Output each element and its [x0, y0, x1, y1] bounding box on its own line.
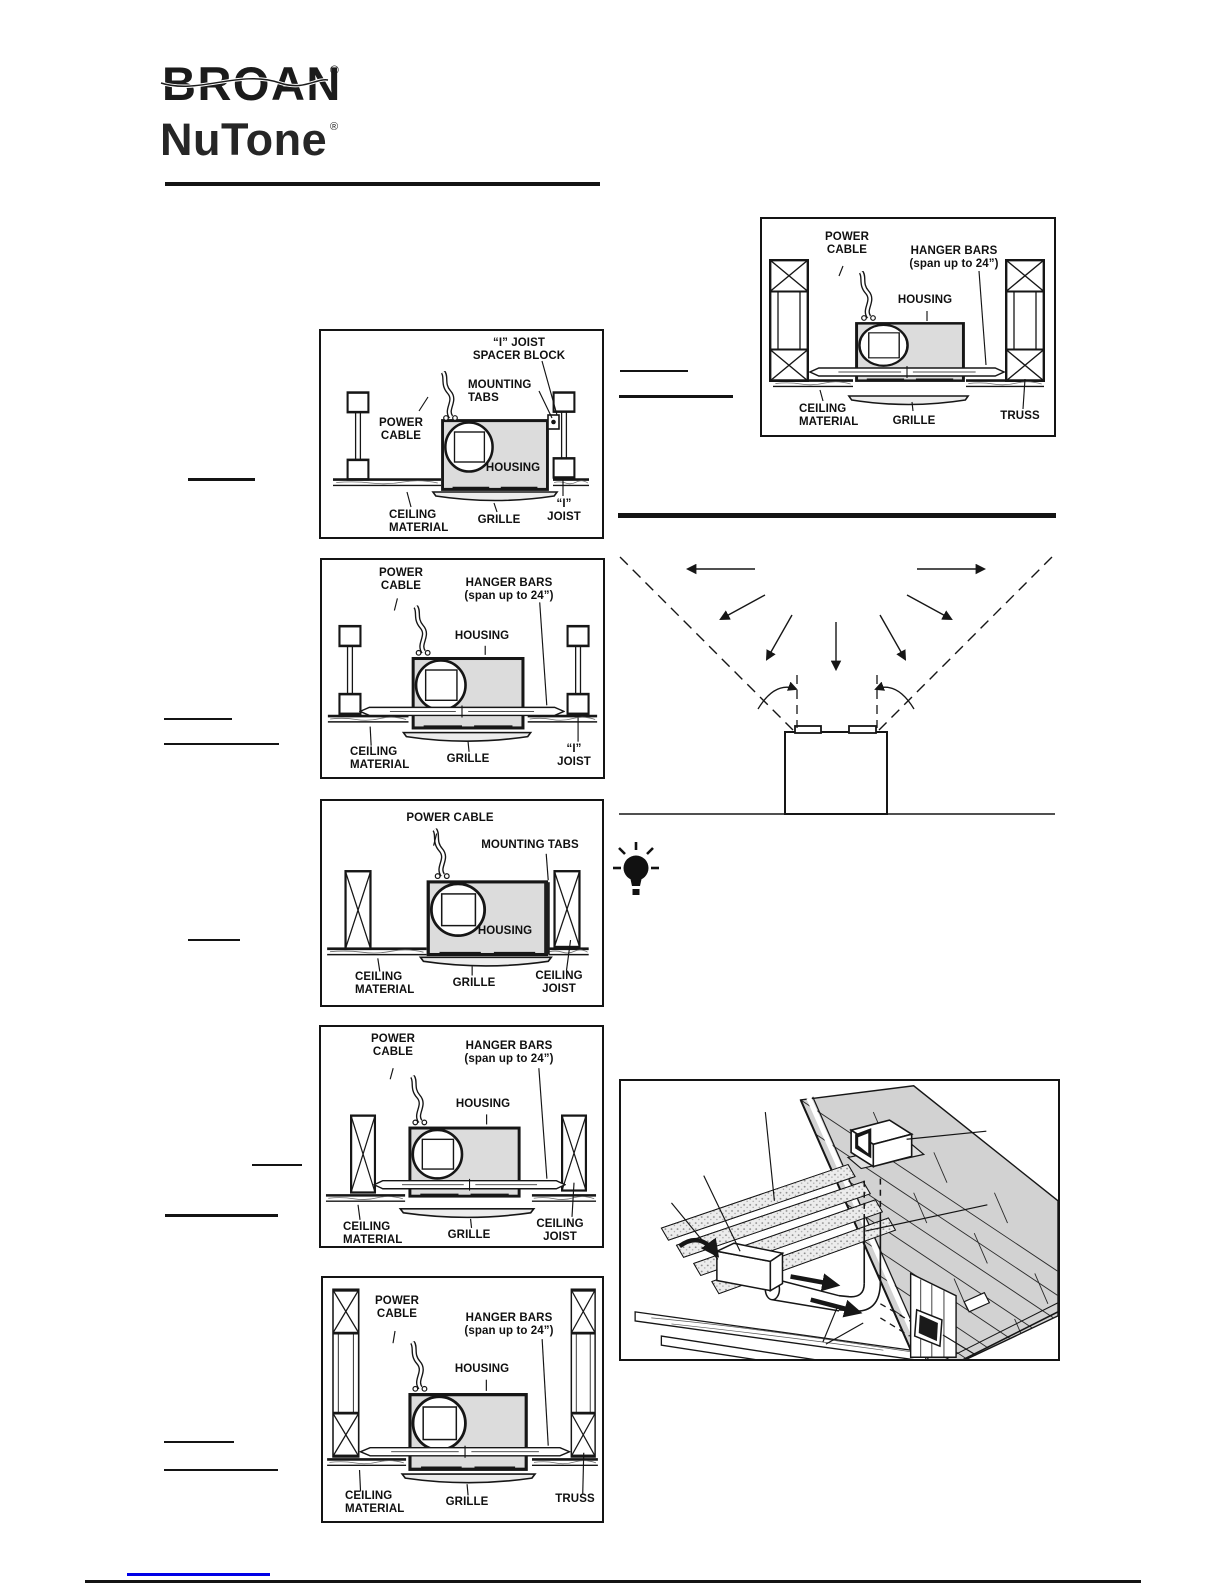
- section-divider-rule: [618, 513, 1056, 518]
- label-grille: GRILLE: [447, 753, 490, 766]
- hanger-bar: [810, 366, 1004, 378]
- figure-truss-hanger: POWER CABLE HANGER BARS (span up to 24”)…: [321, 1276, 604, 1523]
- angle-arc-right: [876, 687, 914, 709]
- air-distribution-diagram: [616, 542, 1058, 818]
- underline-segment: [252, 1164, 302, 1166]
- attic-duct-illustration: [621, 1081, 1058, 1359]
- spread-cone-left: [620, 557, 793, 730]
- joist-left: [351, 1115, 375, 1192]
- label-ceiling-material: CEILING MATERIAL: [350, 746, 409, 771]
- label-hanger-bars: HANGER BARS (span up to 24”): [464, 1040, 553, 1065]
- page-bottom-rule: [85, 1580, 1141, 1583]
- underline-segment: [188, 478, 255, 481]
- truss-left: [770, 260, 808, 381]
- damper-flap-right: [849, 726, 876, 733]
- ceiling-right: [528, 716, 598, 722]
- label-housing: HOUSING: [486, 462, 540, 475]
- underline-segment: [620, 370, 688, 372]
- figure-truss-mounting-top: POWER CABLE HANGER BARS (span up to 24”)…: [760, 217, 1056, 437]
- ijoist-right: [568, 626, 589, 714]
- label-truss: TRUSS: [1000, 410, 1039, 423]
- label-ijoist: “I” JOIST: [557, 743, 591, 768]
- power-cable-drawing: [435, 829, 450, 878]
- underline-segment: [164, 743, 279, 745]
- truss-hanger-diagram: [323, 1278, 602, 1521]
- power-cable-drawing: [412, 1076, 426, 1125]
- ijoist-right: [554, 393, 575, 478]
- grille-drawing: [403, 733, 530, 742]
- grille-drawing: [849, 396, 968, 405]
- ceiling-right: [532, 1195, 596, 1201]
- hanger-bar: [360, 705, 564, 717]
- label-truss: TRUSS: [555, 1493, 594, 1506]
- logo-nutone-reg: ®: [330, 121, 338, 133]
- figure-ijoist-hanger: POWER CABLE HANGER BARS (span up to 24”)…: [320, 558, 605, 779]
- ceiling-left: [333, 480, 441, 486]
- truss-right: [571, 1290, 595, 1457]
- label-ijoist: “I” JOIST: [547, 498, 581, 523]
- logo-nutone-text: NuTone: [160, 114, 327, 165]
- grille-drawing: [433, 492, 557, 501]
- label-ceiling-material: CEILING MATERIAL: [355, 971, 414, 996]
- label-power-cable: POWER CABLE: [406, 812, 493, 825]
- housing-drawing: [410, 1395, 526, 1470]
- truss-right: [1006, 260, 1044, 381]
- power-cable-drawing: [416, 606, 430, 655]
- label-housing: HOUSING: [456, 1098, 510, 1111]
- label-ceiling-joist: CEILING JOIST: [535, 970, 582, 995]
- label-grille: GRILLE: [446, 1496, 489, 1509]
- ceiling-left: [327, 949, 426, 955]
- label-grille: GRILLE: [453, 977, 496, 990]
- figure-ijoist-tabs: “I” JOIST SPACER BLOCK MOUNTING TABS POW…: [319, 329, 604, 539]
- label-hanger-bars: HANGER BARS (span up to 24”): [464, 577, 553, 602]
- label-housing: HOUSING: [455, 1363, 509, 1376]
- label-housing: HOUSING: [455, 630, 509, 643]
- hanger-bar: [361, 1446, 570, 1458]
- ceiling-left: [326, 1195, 405, 1201]
- label-power-cable: POWER CABLE: [379, 417, 423, 442]
- ceiling-left: [327, 1459, 406, 1465]
- mounting-tab-screw: [551, 420, 556, 425]
- figure-cjoist-tabs: POWER CABLE MOUNTING TABS HOUSING CEILIN…: [320, 799, 604, 1007]
- housing-drawing: [428, 882, 546, 955]
- footer-hyperlink[interactable]: [127, 1573, 270, 1576]
- underline-segment: [165, 1214, 278, 1217]
- label-power-cable: POWER CABLE: [379, 567, 423, 592]
- truss-left: [333, 1290, 359, 1457]
- power-cable-drawing: [443, 372, 457, 420]
- ijoist-left: [339, 626, 360, 714]
- figure-cjoist-hanger: POWER CABLE HANGER BARS (span up to 24”)…: [319, 1025, 604, 1248]
- airflow-arrows: [688, 569, 984, 669]
- ceiling-left: [773, 381, 853, 387]
- label-power-cable: POWER CABLE: [371, 1033, 415, 1058]
- hanger-bar: [374, 1179, 565, 1191]
- label-ceiling-material: CEILING MATERIAL: [345, 1490, 404, 1515]
- label-grille: GRILLE: [893, 415, 936, 428]
- label-mounting-tabs: MOUNTING TABS: [468, 379, 531, 404]
- ceiling-right: [553, 480, 589, 486]
- underline-segment: [164, 1469, 278, 1471]
- label-hanger-bars: HANGER BARS (span up to 24”): [909, 245, 998, 270]
- power-cable-drawing: [412, 1342, 427, 1391]
- figure-attic-duct-routing: [619, 1079, 1060, 1361]
- angle-arc-left: [758, 687, 796, 709]
- grille-drawing: [402, 1474, 535, 1483]
- mounting-tab-strip: [544, 882, 550, 954]
- label-hanger-bars: HANGER BARS (span up to 24”): [464, 1312, 553, 1337]
- power-cable-drawing: [861, 272, 875, 320]
- label-grille: GRILLE: [448, 1229, 491, 1242]
- underline-segment: [188, 939, 240, 941]
- label-ceiling-joist: CEILING JOIST: [536, 1218, 583, 1243]
- header-rule: [165, 182, 600, 186]
- grille-drawing: [400, 1209, 533, 1218]
- housing-drawing: [443, 421, 548, 490]
- housing-drawing: [413, 659, 523, 728]
- vent-housing-box: [785, 732, 887, 814]
- label-ceiling-material: CEILING MATERIAL: [343, 1221, 402, 1246]
- broan-nutone-logo: BROAN ® NuTone ®: [158, 52, 538, 177]
- underline-segment: [619, 395, 733, 398]
- spread-cone-right: [879, 557, 1052, 730]
- ijoist-left: [348, 393, 369, 480]
- label-ceiling-material: CEILING MATERIAL: [799, 403, 858, 428]
- ceiling-right: [966, 381, 1044, 387]
- joist-right: [562, 1115, 586, 1190]
- label-grille: GRILLE: [478, 514, 521, 527]
- grille-drawing: [420, 957, 551, 966]
- manual-page: { "brand": {"line1": "BROAN", "line2": "…: [0, 0, 1225, 1585]
- ceiling-right: [532, 1459, 598, 1465]
- joist-right: [554, 871, 579, 947]
- label-ijoist-spacer-block: “I” JOIST SPACER BLOCK: [473, 337, 565, 362]
- label-housing: HOUSING: [898, 294, 952, 307]
- label-housing: HOUSING: [478, 925, 532, 938]
- tip-lightbulb-icon: [612, 841, 660, 897]
- label-power-cable: POWER CABLE: [825, 231, 869, 256]
- label-ceiling-material: CEILING MATERIAL: [389, 509, 448, 534]
- underline-segment: [164, 718, 232, 720]
- damper-flap-left: [795, 726, 821, 733]
- label-mounting-tabs: MOUNTING TABS: [481, 839, 579, 852]
- ceiling-left: [328, 716, 409, 722]
- joist-left: [345, 871, 370, 949]
- label-power-cable: POWER CABLE: [375, 1295, 419, 1320]
- cjoist-hanger-diagram: [321, 1027, 602, 1246]
- logo-broan-reg: ®: [330, 63, 339, 77]
- underline-segment: [164, 1441, 234, 1443]
